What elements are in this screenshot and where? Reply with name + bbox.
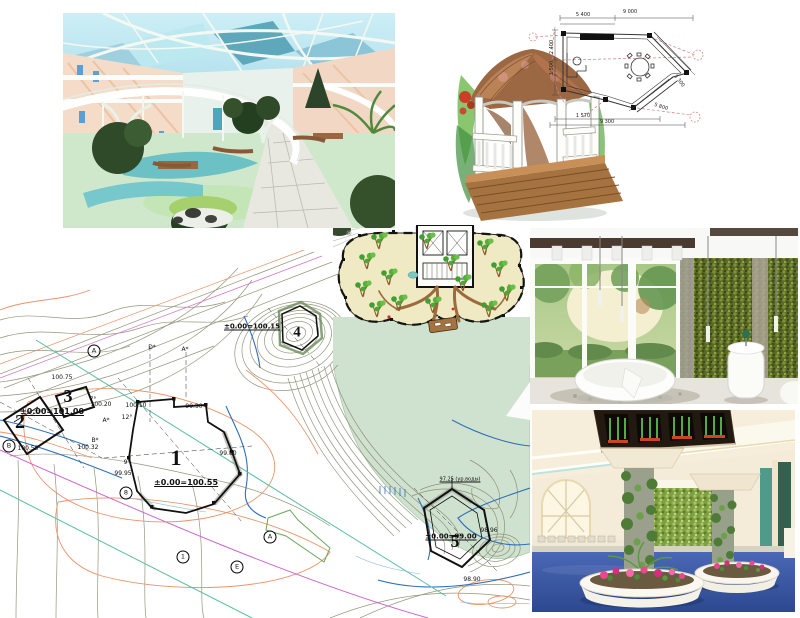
faucet-knob bbox=[742, 330, 750, 338]
siteplan-label: A* bbox=[181, 347, 188, 353]
arched-window bbox=[542, 480, 590, 538]
siteplan-label: 100.10 bbox=[126, 403, 147, 409]
siteplan-label: 1 bbox=[177, 551, 190, 564]
siteplan-label: 100.55 bbox=[18, 446, 39, 452]
bathroom-rendering bbox=[530, 228, 798, 404]
gazebo-dimension: 2 400 bbox=[549, 40, 555, 54]
plan-pond bbox=[408, 272, 418, 278]
siteplan-label: 99.80 bbox=[219, 451, 236, 457]
gazebo-dimension: 1 500 bbox=[549, 61, 555, 75]
right-pedestal bbox=[784, 528, 795, 558]
portfolio-collage: 12345±0.00=100.55±0.00=101.00±0.00=100.1… bbox=[0, 0, 800, 618]
gazebo-sketch-panel: 5 4009 0002 4001 5003 3005 8001 5709 300 bbox=[455, 5, 800, 225]
siteplan-label: ±0.00=99.00 bbox=[425, 534, 476, 541]
siteplan-label: 8 bbox=[120, 487, 133, 500]
atrium-rendering bbox=[63, 13, 395, 228]
master-plan-drawing bbox=[333, 225, 530, 365]
siteplan-label: E bbox=[231, 561, 244, 574]
gazebo-dimension: 3 300 bbox=[672, 74, 686, 89]
siteplan-label: A* bbox=[102, 418, 109, 424]
hall-render-panel bbox=[532, 410, 795, 612]
siteplan-label: ±0.00=101.00 bbox=[20, 408, 84, 416]
ceiling bbox=[530, 228, 798, 260]
gazebo-dimension: 5 800 bbox=[653, 102, 668, 112]
master-plan-panel bbox=[333, 225, 530, 365]
siteplan-label: B bbox=[3, 440, 16, 453]
siteplan-label: 97.25 (ур.воды) bbox=[440, 478, 481, 483]
gazebo-dimension-labels: 5 4009 0002 4001 5003 3005 8001 5709 300 bbox=[455, 5, 800, 225]
siteplan-label: 99.95 bbox=[114, 471, 131, 477]
planter-1 bbox=[580, 566, 704, 608]
gazebo-dimension: 5 400 bbox=[576, 12, 590, 18]
atrium-render-panel bbox=[63, 13, 395, 228]
gazebo-dimension: 9 300 bbox=[600, 119, 614, 125]
siteplan-label: 3 bbox=[64, 387, 73, 405]
siteplan-label: 99.90 bbox=[185, 404, 202, 410]
siteplan-label: 98.90 bbox=[463, 577, 480, 583]
siteplan-label: 1 bbox=[171, 447, 182, 469]
siteplan-label: A bbox=[264, 531, 277, 544]
bathtub bbox=[575, 359, 675, 404]
siteplan-label: 12° bbox=[122, 415, 133, 421]
siteplan-label: D* bbox=[148, 345, 156, 351]
back-door bbox=[213, 108, 223, 130]
display-board bbox=[594, 410, 735, 452]
hall-rendering bbox=[532, 410, 795, 612]
siteplan-label: 100.32 bbox=[78, 445, 99, 451]
gazebo-dimension: 9 000 bbox=[623, 9, 637, 15]
right-balcony-band bbox=[293, 83, 395, 87]
siteplan-label: A bbox=[88, 345, 101, 358]
siteplan-label: ±0.00=100.15 bbox=[224, 324, 280, 331]
gazebo-dimension: 1 570 bbox=[576, 113, 590, 119]
siteplan-label: 98.96 bbox=[480, 528, 497, 534]
siteplan-label: 4 bbox=[293, 326, 301, 341]
siteplan-label: 100.75 bbox=[52, 375, 73, 381]
siteplan-label: ±0.00=100.55 bbox=[154, 479, 218, 487]
bathroom-render-panel bbox=[530, 228, 798, 404]
siteplan-label: 9° bbox=[124, 460, 131, 466]
rocks bbox=[173, 208, 233, 228]
siteplan-label: 100.20 bbox=[91, 402, 112, 408]
planter-2 bbox=[695, 560, 779, 593]
